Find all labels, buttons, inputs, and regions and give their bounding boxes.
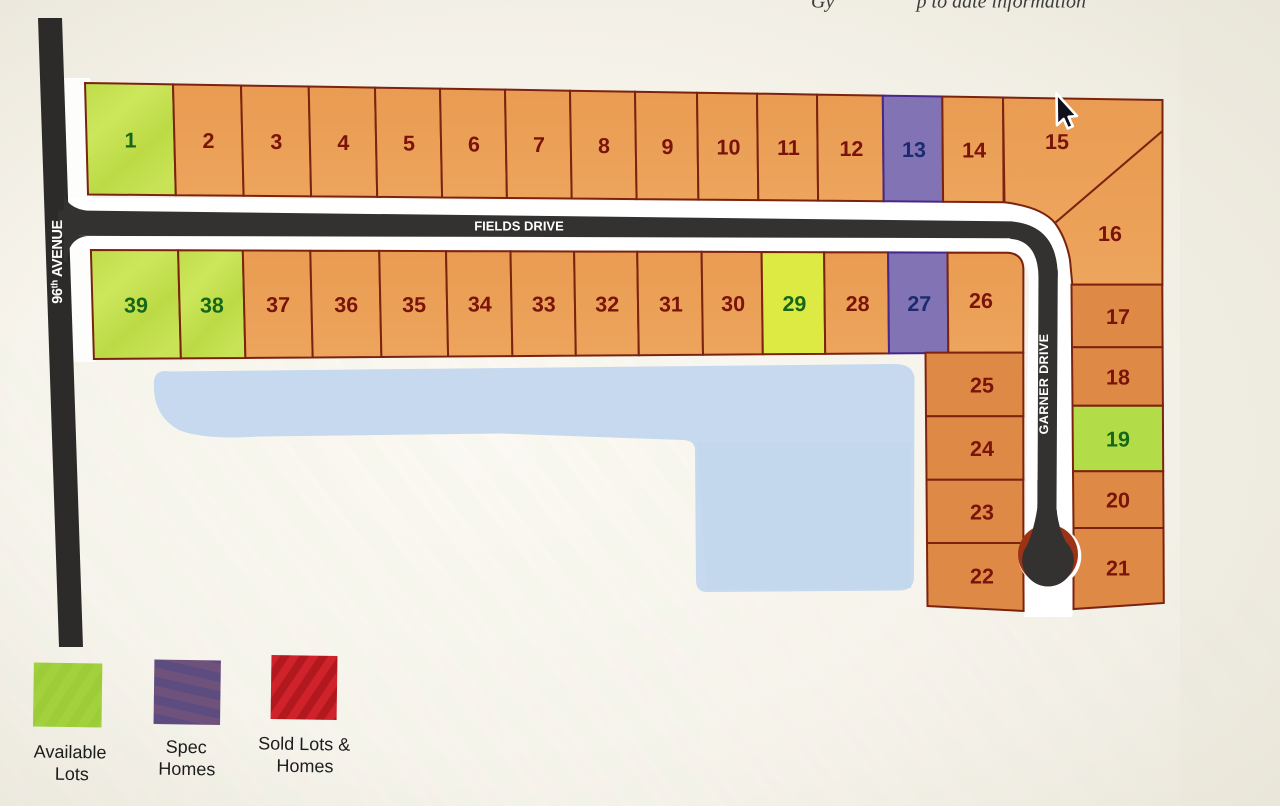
svg-text:7: 7 (533, 133, 545, 157)
svg-text:33: 33 (532, 293, 556, 317)
svg-text:9: 9 (662, 135, 674, 159)
svg-text:GARNER DRIVE: GARNER DRIVE (1037, 334, 1051, 435)
svg-text:Gy: Gy (811, 0, 834, 13)
svg-text:6: 6 (468, 132, 480, 156)
svg-text:22: 22 (970, 565, 994, 589)
svg-text:37: 37 (266, 293, 290, 317)
svg-text:32: 32 (595, 293, 619, 317)
svg-text:21: 21 (1106, 557, 1130, 581)
svg-text:36: 36 (334, 293, 358, 317)
svg-text:p to date information: p to date information (915, 0, 1086, 13)
svg-text:13: 13 (902, 138, 926, 162)
svg-text:16: 16 (1098, 222, 1122, 246)
svg-text:23: 23 (970, 500, 994, 524)
svg-text:5: 5 (403, 132, 415, 156)
svg-text:3: 3 (270, 130, 282, 154)
svg-text:12: 12 (839, 137, 863, 161)
svg-text:11: 11 (777, 136, 800, 160)
svg-text:14: 14 (962, 139, 986, 163)
svg-text:4: 4 (337, 131, 349, 155)
svg-text:27: 27 (907, 292, 931, 316)
svg-text:31: 31 (659, 292, 683, 316)
svg-text:1: 1 (125, 128, 137, 152)
svg-text:35: 35 (402, 293, 426, 317)
svg-text:18: 18 (1106, 366, 1130, 390)
svg-text:34: 34 (468, 293, 492, 317)
svg-text:96th AVENUE: 96th AVENUE (50, 219, 67, 303)
svg-text:39: 39 (124, 293, 148, 317)
svg-text:26: 26 (969, 289, 993, 313)
svg-text:10: 10 (717, 136, 741, 160)
svg-text:25: 25 (970, 374, 994, 398)
svg-text:8: 8 (598, 134, 610, 158)
svg-text:19: 19 (1106, 428, 1130, 452)
svg-text:29: 29 (782, 292, 806, 316)
svg-text:15: 15 (1045, 130, 1069, 154)
svg-text:38: 38 (200, 293, 224, 317)
svg-text:30: 30 (721, 292, 745, 316)
svg-text:17: 17 (1106, 305, 1130, 329)
svg-text:FIELDS DRIVE: FIELDS DRIVE (474, 219, 564, 234)
svg-text:2: 2 (203, 129, 215, 153)
svg-text:20: 20 (1106, 489, 1130, 513)
svg-text:28: 28 (846, 292, 870, 316)
svg-text:24: 24 (970, 437, 994, 461)
